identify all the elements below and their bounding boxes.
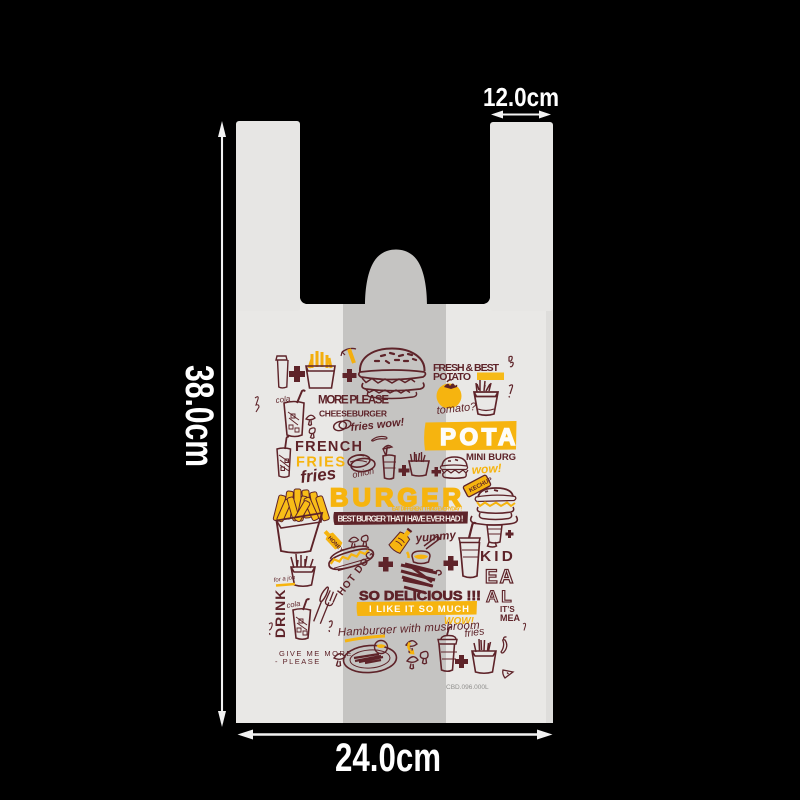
svg-text:CHEESEBURGER: CHEESEBURGER (319, 409, 388, 419)
svg-text:FRENCH: FRENCH (295, 439, 363, 455)
svg-text:wow!: wow! (471, 461, 502, 477)
svg-text:BEST BURGER THAT I HAVE EVER H: BEST BURGER THAT I HAVE EVER HAD ! (338, 515, 464, 524)
svg-text:I LIKE IT SO MUCH: I LIKE IT SO MUCH (369, 604, 469, 615)
svg-text:24.0cm: 24.0cm (335, 736, 441, 780)
svg-text:38.0cm: 38.0cm (177, 365, 221, 467)
svg-text:CBD.096.000L: CBD.096.000L (446, 684, 489, 691)
svg-text:12.0cm: 12.0cm (483, 82, 559, 112)
svg-text:EA: EA (485, 567, 515, 588)
svg-text:AL: AL (486, 587, 515, 606)
svg-text:DRINK: DRINK (272, 589, 288, 638)
svg-text:KID: KID (480, 549, 516, 565)
svg-text:POTATO: POTATO (433, 371, 471, 383)
svg-text:MEA: MEA (500, 613, 521, 623)
svg-text:MORE PLEASE: MORE PLEASE (318, 395, 389, 407)
svg-text:- PLEASE: - PLEASE (275, 657, 321, 666)
svg-text:POTA: POTA (440, 424, 519, 451)
